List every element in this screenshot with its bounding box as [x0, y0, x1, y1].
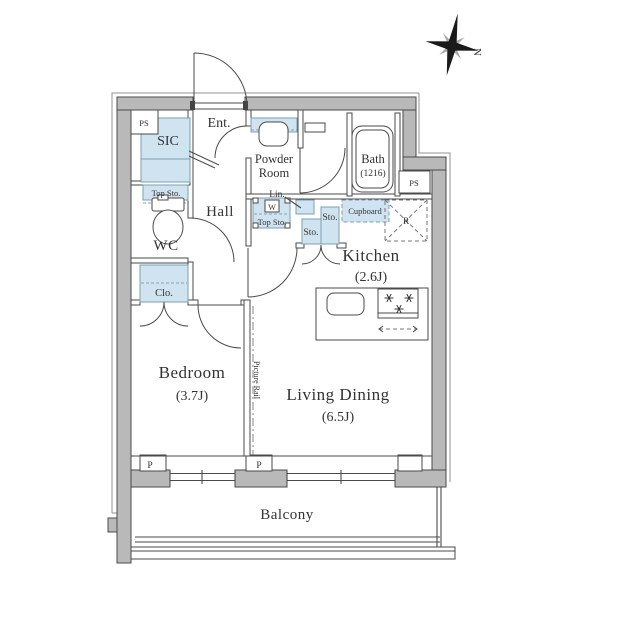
pillar-center-label: P	[256, 461, 261, 471]
floor-plan-canvas: Ent. SIC Top Sto. WC Hall Clo. Powder Ro…	[0, 0, 640, 640]
step-wall-vertical	[403, 110, 416, 157]
living-window	[287, 470, 395, 484]
picture-rail-label: Picture Rail	[252, 361, 261, 400]
balcony-label: Balcony	[260, 507, 314, 523]
wall-stub	[108, 518, 117, 532]
kitchen-sink-icon	[327, 293, 364, 315]
living-dining-label-1: Living Dining	[286, 385, 389, 404]
balcony-railing	[131, 487, 455, 559]
bath-label-2: (1216)	[360, 168, 385, 179]
step-wall-horizontal	[403, 157, 446, 170]
pillar-notch-right	[398, 455, 422, 471]
window-pier-right	[395, 470, 446, 487]
compass-icon	[420, 9, 484, 80]
bedroom-label-1: Bedroom	[159, 363, 226, 382]
wc-label: WC	[153, 238, 178, 254]
stove-icon	[378, 289, 418, 318]
pipe-space-top-left-label: PS	[139, 118, 149, 128]
powder-room-label-2: Room	[259, 166, 290, 180]
bath-label-1: Bath	[361, 152, 385, 166]
washroom-door	[300, 148, 345, 193]
closet-double-doors	[140, 302, 188, 326]
cupboard-label: Cupboard	[348, 206, 382, 216]
entrance-door	[190, 53, 248, 110]
pipe-space-right-label: PS	[409, 178, 419, 188]
shoe-closet-label: SIC	[157, 134, 179, 149]
kitchen-label-2: (2.6J)	[355, 270, 388, 285]
left-wall	[117, 97, 131, 563]
washroom-shelf	[305, 123, 325, 132]
bedroom-door	[198, 305, 241, 348]
wc-door	[190, 218, 234, 262]
wc-top-storage-label: Top Sto.	[152, 188, 181, 198]
entrance-label: Ent.	[208, 116, 231, 131]
kitchen-label-1: Kitchen	[342, 246, 399, 265]
storage-b-label: Sto.	[322, 213, 337, 223]
living-dining-label-2: (6.5J)	[322, 410, 355, 425]
shoe-closet-lower-box	[141, 159, 190, 182]
linen-label: Lin.	[269, 190, 285, 200]
bedroom-label-2: (3.7J)	[176, 389, 209, 404]
closet-label: Clo.	[155, 288, 173, 299]
refrigerator-label: R	[403, 217, 410, 227]
window-pier-center	[235, 470, 287, 487]
basin-icon	[259, 122, 288, 146]
storage-a-label: Sto.	[303, 228, 318, 238]
pillar-left-label: P	[147, 461, 152, 471]
powder-room-label-1: Powder	[255, 152, 294, 166]
washer-label: W	[268, 203, 276, 212]
hall-label: Hall	[206, 204, 234, 220]
top-wall-right	[245, 97, 416, 110]
top-wall-left	[117, 97, 193, 110]
living-door	[248, 248, 297, 297]
kitchen-counter	[316, 288, 428, 340]
window-pier-left	[131, 470, 170, 487]
washer-top-storage-label: Top Sto.	[258, 217, 287, 227]
pillar-notch-left	[140, 455, 166, 471]
floor-plan: Ent. SIC Top Sto. WC Hall Clo. Powder Ro…	[0, 0, 640, 640]
bedroom-window	[170, 470, 235, 484]
storage-bifold-doors	[302, 245, 340, 264]
compass-north-label: N	[471, 48, 483, 56]
toilet-icon	[152, 195, 184, 244]
right-wall	[432, 170, 446, 480]
